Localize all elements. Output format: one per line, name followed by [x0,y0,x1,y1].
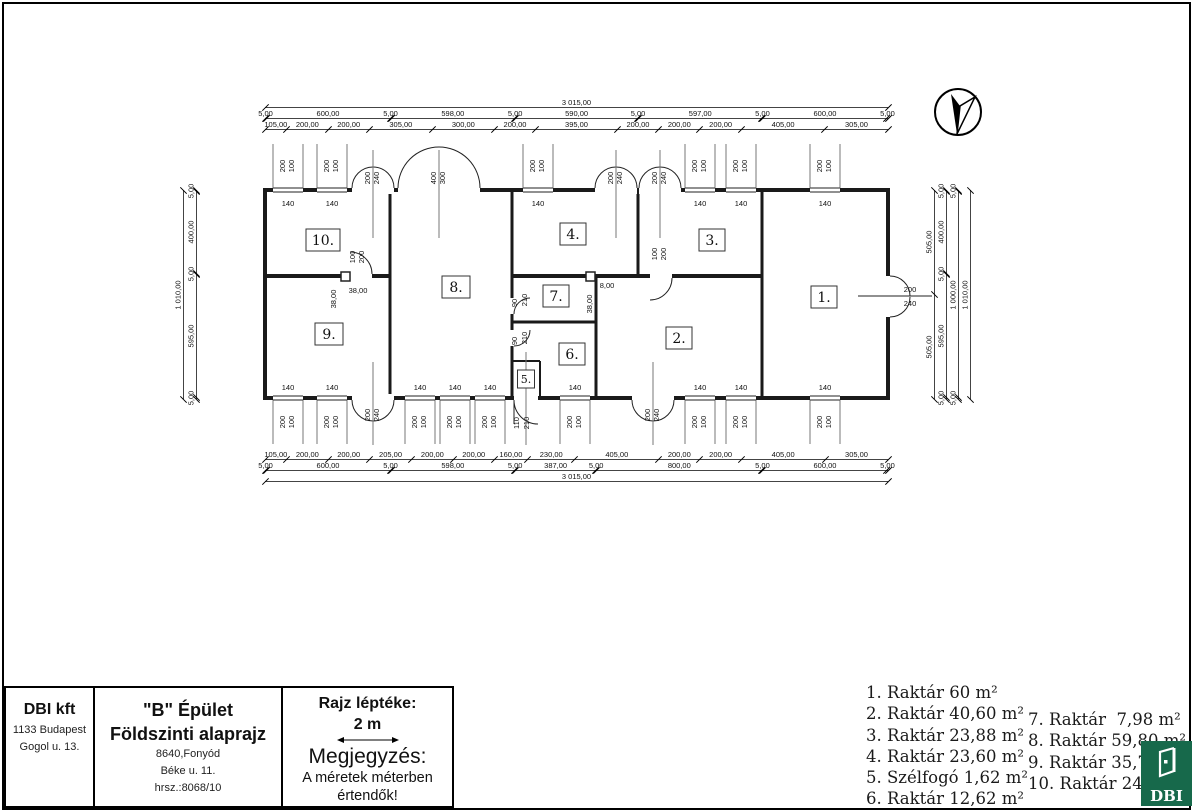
dimension-segment: 405,00 [741,449,825,459]
dimension-label: 200,00 [296,120,319,129]
legend-item: 7. Raktár 7,98 m² [1028,709,1186,730]
dimension-segment: 405,00 [575,449,659,459]
scale-title: Rajz léptéke: [283,692,452,716]
plan-annotation: 100 [824,416,833,429]
dimension-label: 5,00 [949,391,958,406]
plan-annotation: 200 [363,172,372,185]
dimension-label: 200,00 [709,450,732,459]
dimension-label: 200,00 [296,450,319,459]
dimension-label: 400,00 [187,221,196,244]
dimension-segment: 598,00 [391,108,515,118]
scale-bar-icon [336,735,400,745]
window [273,394,303,402]
window [560,394,590,402]
title-block: DBI kft 1133 Budapest Gogol u. 13. "B" É… [4,686,454,808]
plan-annotation: 140 [484,383,497,392]
dimension-label: 3 015,00 [562,472,591,481]
dimension-row: 5,00400,005,00595,005,00 [936,190,947,399]
dimension-segment: 160,00 [494,449,527,459]
drawing-sheet: 2001001402001001402001001402001001402001… [0,0,1193,812]
plan-annotation: 200 [357,251,366,264]
dimension-segment: 305,00 [825,449,888,459]
window [523,186,553,194]
plan-annotation: 140 [694,383,707,392]
dimension-segment: 595,00 [186,275,196,398]
plan-annotation: 100 [287,160,296,173]
dimension-label: 800,00 [668,461,691,470]
dimension-segment: 405,00 [741,119,825,129]
plan-annotation: 200 [690,416,699,429]
window [405,394,435,402]
dimension-label: 200,00 [668,120,691,129]
dimension-label: 595,00 [187,325,196,348]
plan-annotation: 100 [348,251,357,264]
dimension-segment: 505,00 [924,295,934,400]
window [810,186,840,194]
dimension-row: 3 015,00 [265,97,888,108]
plan-annotation: 100 [699,160,708,173]
dimension-label: 205,00 [379,450,402,459]
plan-annotation: 100 [537,160,546,173]
window [475,394,505,402]
dimension-segment: 5,00 [887,108,888,118]
plan-annotation: 140 [735,383,748,392]
dimension-label: 405,00 [772,120,795,129]
window [726,186,756,194]
dimension-segment: 105,00 [265,119,287,129]
plan-annotation: 140 [819,383,832,392]
dimension-segment: 600,00 [763,108,887,118]
dimension-label: 600,00 [813,461,836,470]
plan-annotation: 90 [510,337,519,345]
site-parcel-number: hrsz.:8068/10 [95,780,281,797]
plan-annotation: 90 [510,299,519,307]
dimension-row: 105,00200,00200,00205,00200,00200,00160,… [265,449,888,460]
plan-annotation: 100 [489,416,498,429]
dimension-label: 5,00 [880,109,895,118]
plan-annotation: 100 [574,416,583,429]
plan-annotation: 140 [694,199,707,208]
dimension-row: 5,00600,005,00598,005,00590,005,00597,00… [265,108,888,119]
company-address-line2: Gogol u. 13. [6,739,93,756]
plan-annotation: 210 [520,294,529,307]
plan-annotation: 200 [445,416,454,429]
plan-annotation: 200 [815,416,824,429]
title-block-company: DBI kft 1133 Budapest Gogol u. 13. [6,688,95,806]
dimension-label: 598,00 [441,109,464,118]
chimney [586,272,595,281]
dimension-label: 405,00 [772,450,795,459]
dimension-label: 5,00 [187,391,196,406]
room-number: 6. [565,347,578,363]
room-number: 2. [672,331,685,347]
dimension-label: 505,00 [925,335,934,358]
dimension-segment: 200,00 [494,119,535,129]
plan-annotation: 200 [815,160,824,173]
plan-annotation: 200 [565,416,574,429]
legend-item: 3. Raktár 23,88 m² [866,725,1028,746]
dimension-label: 590,00 [565,109,588,118]
plan-annotation: 100 [740,416,749,429]
dimension-segment: 800,00 [597,460,762,470]
dimension-label: 405,00 [605,450,628,459]
dimension-segment: 1 010,00 [960,190,970,399]
plan-annotation: 140 [282,199,295,208]
plan-annotation: 38,00 [585,295,594,314]
plan-annotation: 240 [904,299,917,308]
dimension-label: 230,00 [540,450,563,459]
plan-annotation: 200 [690,160,699,173]
site-address-line2: Béke u. 11. [95,763,281,780]
dimension-label: 3 015,00 [562,98,591,107]
plan-annotation: 140 [326,199,339,208]
dimension-label: 160,00 [499,450,522,459]
plan-annotation: 100 [699,416,708,429]
dimension-segment: 600,00 [763,460,887,470]
plan-annotation: 140 [819,199,832,208]
legend-item: 6. Raktár 12,62 m² [866,788,1028,809]
room-number: 5. [521,373,532,386]
window [440,394,470,402]
dimension-row: 1 010,00 [960,190,971,399]
window [810,394,840,402]
plan-annotation: 100 [824,160,833,173]
title-block-scale-note: Rajz léptéke: 2 m Megjegyzés: A méretek … [283,688,452,806]
plan-annotation: 200 [410,416,419,429]
plan-annotation: 140 [326,383,339,392]
dimension-label: 598,00 [441,461,464,470]
plan-annotation: 100 [454,416,463,429]
dimension-label: 200,00 [709,120,732,129]
dimension-segment: 387,00 [516,460,596,470]
building-name: "B" Épület [95,698,281,722]
plan-annotation: 100 [650,248,659,261]
plan-annotation: 100 [740,160,749,173]
dimension-label: 5,00 [937,391,946,406]
dimension-segment: 1 010,00 [173,190,183,399]
plan-annotation: 400 [429,172,438,185]
room-number: 4. [566,227,579,243]
company-name: DBI kft [6,698,93,722]
dimension-label: 200,00 [668,450,691,459]
dimension-label: 395,00 [565,120,588,129]
dimension-segment: 505,00 [924,190,934,295]
dimension-segment: 200,00 [328,119,369,129]
plan-annotation: 210 [522,417,531,430]
plan-annotation: 200 [643,409,652,422]
plan-annotation: 38,00 [349,286,368,295]
plan-annotation: 200 [606,172,615,185]
dimension-row: 105,00200,00200,00305,00300,00200,00395,… [265,119,888,130]
dimension-label: 600,00 [813,109,836,118]
dimension-segment: 200,00 [287,119,328,129]
window [317,186,347,194]
dimension-segment: 395,00 [536,119,618,129]
dimension-segment: 305,00 [369,119,432,129]
dimension-label: 305,00 [389,120,412,129]
dimension-segment: 200,00 [617,119,658,129]
plan-annotation: 8,00 [600,281,615,290]
room-number: 3. [705,233,718,249]
plan-annotation: 200 [278,416,287,429]
dimension-segment: 200,00 [287,449,328,459]
room-number: 10. [312,233,334,249]
plan-annotation: 200 [650,172,659,185]
plan-annotation: 300 [438,172,447,185]
dimension-label: 200,00 [421,450,444,459]
dimension-label: 600,00 [317,461,340,470]
dimension-segment: 300,00 [432,119,494,129]
dimension-segment: 3 015,00 [265,97,888,107]
dimension-label: 1 010,00 [174,280,183,309]
legend-item: 4. Raktár 23,60 m² [866,746,1028,767]
title-block-drawing: "B" Épület Földszinti alaprajz 8640,Fony… [95,688,283,806]
plan-annotation: 140 [569,383,582,392]
dimension-row: 3 015,00 [265,471,888,482]
dbi-logo-text: DBI [1141,787,1192,805]
dimension-segment: 5,00 [936,398,946,399]
plan-annotation: 200 [363,409,372,422]
dimension-label: 387,00 [544,461,567,470]
dimension-segment: 600,00 [266,108,390,118]
legend-item: 1. Raktár 60 m² [866,682,1028,703]
dimension-segment: 595,00 [936,275,946,398]
dimension-row: 1 010,00 [173,190,184,399]
dimension-segment: 5,00 [887,460,888,470]
room-legend-column-1: 1. Raktár 60 m²2. Raktár 40,60 m²3. Rakt… [866,682,1028,810]
site-address-line1: 8640,Fonyód [95,746,281,763]
dimension-label: 200,00 [337,450,360,459]
dimension-label: 200,00 [462,450,485,459]
dbi-logo: DBI [1141,741,1192,806]
dimension-segment: 400,00 [186,191,196,274]
plan-annotation: 100 [419,416,428,429]
window [317,394,347,402]
dimension-segment: 600,00 [266,460,390,470]
plan-annotation: 240 [372,409,381,422]
plan-annotation: 240 [615,172,624,185]
dimension-segment: 200,00 [453,449,494,459]
plan-annotation: 140 [735,199,748,208]
plan-annotation: 200 [322,416,331,429]
dimension-segment: 5,00 [948,398,958,399]
plan-annotation: 200 [528,160,537,173]
note-title: Megjegyzés: [283,745,452,769]
legend-item: 2. Raktár 40,60 m² [866,703,1028,724]
plan-annotation: 100 [331,160,340,173]
dimension-segment: 230,00 [527,449,575,459]
dimension-segment: 597,00 [639,108,762,118]
room-number: 7. [549,289,562,305]
north-arrow-icon [930,84,986,140]
room-number: 9. [322,327,335,343]
plan-annotation: 240 [372,172,381,185]
dimension-segment: 200,00 [700,119,741,129]
dimension-label: 400,00 [937,221,946,244]
dimension-segment: 200,00 [659,449,700,459]
plan-annotation: 38,00 [329,290,338,309]
plan-annotation: 200 [731,416,740,429]
dimension-label: 305,00 [845,450,868,459]
plan-annotation: 200 [278,160,287,173]
plan-annotation: 200 [322,160,331,173]
dimension-row: 505,00505,00 [924,190,935,399]
dimension-label: 200,00 [626,120,649,129]
room-number: 1. [817,290,830,306]
dimension-segment: 305,00 [825,119,888,129]
plan-annotation: 100 [331,416,340,429]
dimension-label: 200,00 [337,120,360,129]
dimension-segment: 598,00 [391,460,515,470]
plan-annotation: 200 [731,160,740,173]
dimension-label: 200,00 [504,120,527,129]
company-address-line1: 1133 Budapest [6,722,93,739]
dimension-segment: 400,00 [936,191,946,274]
dimension-row: 5,00600,005,00598,005,00387,005,00800,00… [265,460,888,471]
dimension-label: 105,00 [264,450,287,459]
plan-annotation: 140 [414,383,427,392]
plan-annotation: 140 [449,383,462,392]
dimension-row: 5,00400,005,00595,005,00 [186,190,197,399]
dimension-label: 1 010,00 [961,280,970,309]
dimension-segment: 200,00 [659,119,700,129]
window [726,394,756,402]
window [685,394,715,402]
dimension-segment: 590,00 [516,108,638,118]
dimension-row: 5,001 000,005,00 [948,190,959,399]
chimney [341,272,350,281]
window [685,186,715,194]
room-number: 8. [449,280,462,296]
drawing-title: Földszinti alaprajz [95,722,281,746]
plan-annotation: 100 [287,416,296,429]
plan-annotation: 140 [532,199,545,208]
dimension-label: 505,00 [925,231,934,254]
dimension-label: 305,00 [845,120,868,129]
plan-annotation: 200 [904,285,917,294]
dimension-segment: 200,00 [412,449,453,459]
dimension-segment: 1 000,00 [948,191,958,398]
dimension-label: 595,00 [937,325,946,348]
plan-annotation: 200 [659,248,668,261]
window [273,186,303,194]
note-line2: értendők! [283,787,452,805]
note-line1: A méretek méterben [283,769,452,787]
legend-item: 5. Szélfogó 1,62 m² [866,767,1028,788]
dimension-label: 300,00 [452,120,475,129]
plan-annotation: 210 [520,332,529,345]
dimension-segment: 5,00 [186,398,196,399]
dimension-segment: 105,00 [265,449,287,459]
dimension-label: 5,00 [880,461,895,470]
plan-annotation: 240 [652,409,661,422]
scale-value: 2 m [283,716,452,734]
dimension-label: 600,00 [317,109,340,118]
plan-annotation: 110 [512,417,521,429]
dimension-segment: 205,00 [369,449,411,459]
plan-annotation: 240 [659,172,668,185]
dimension-segment: 200,00 [700,449,741,459]
dimension-label: 1 000,00 [949,280,958,309]
dimension-label: 105,00 [264,120,287,129]
dimension-segment: 3 015,00 [265,471,888,481]
plan-annotation: 200 [480,416,489,429]
dimension-segment: 200,00 [328,449,369,459]
plan-annotation: 140 [282,383,295,392]
dimension-label: 597,00 [689,109,712,118]
